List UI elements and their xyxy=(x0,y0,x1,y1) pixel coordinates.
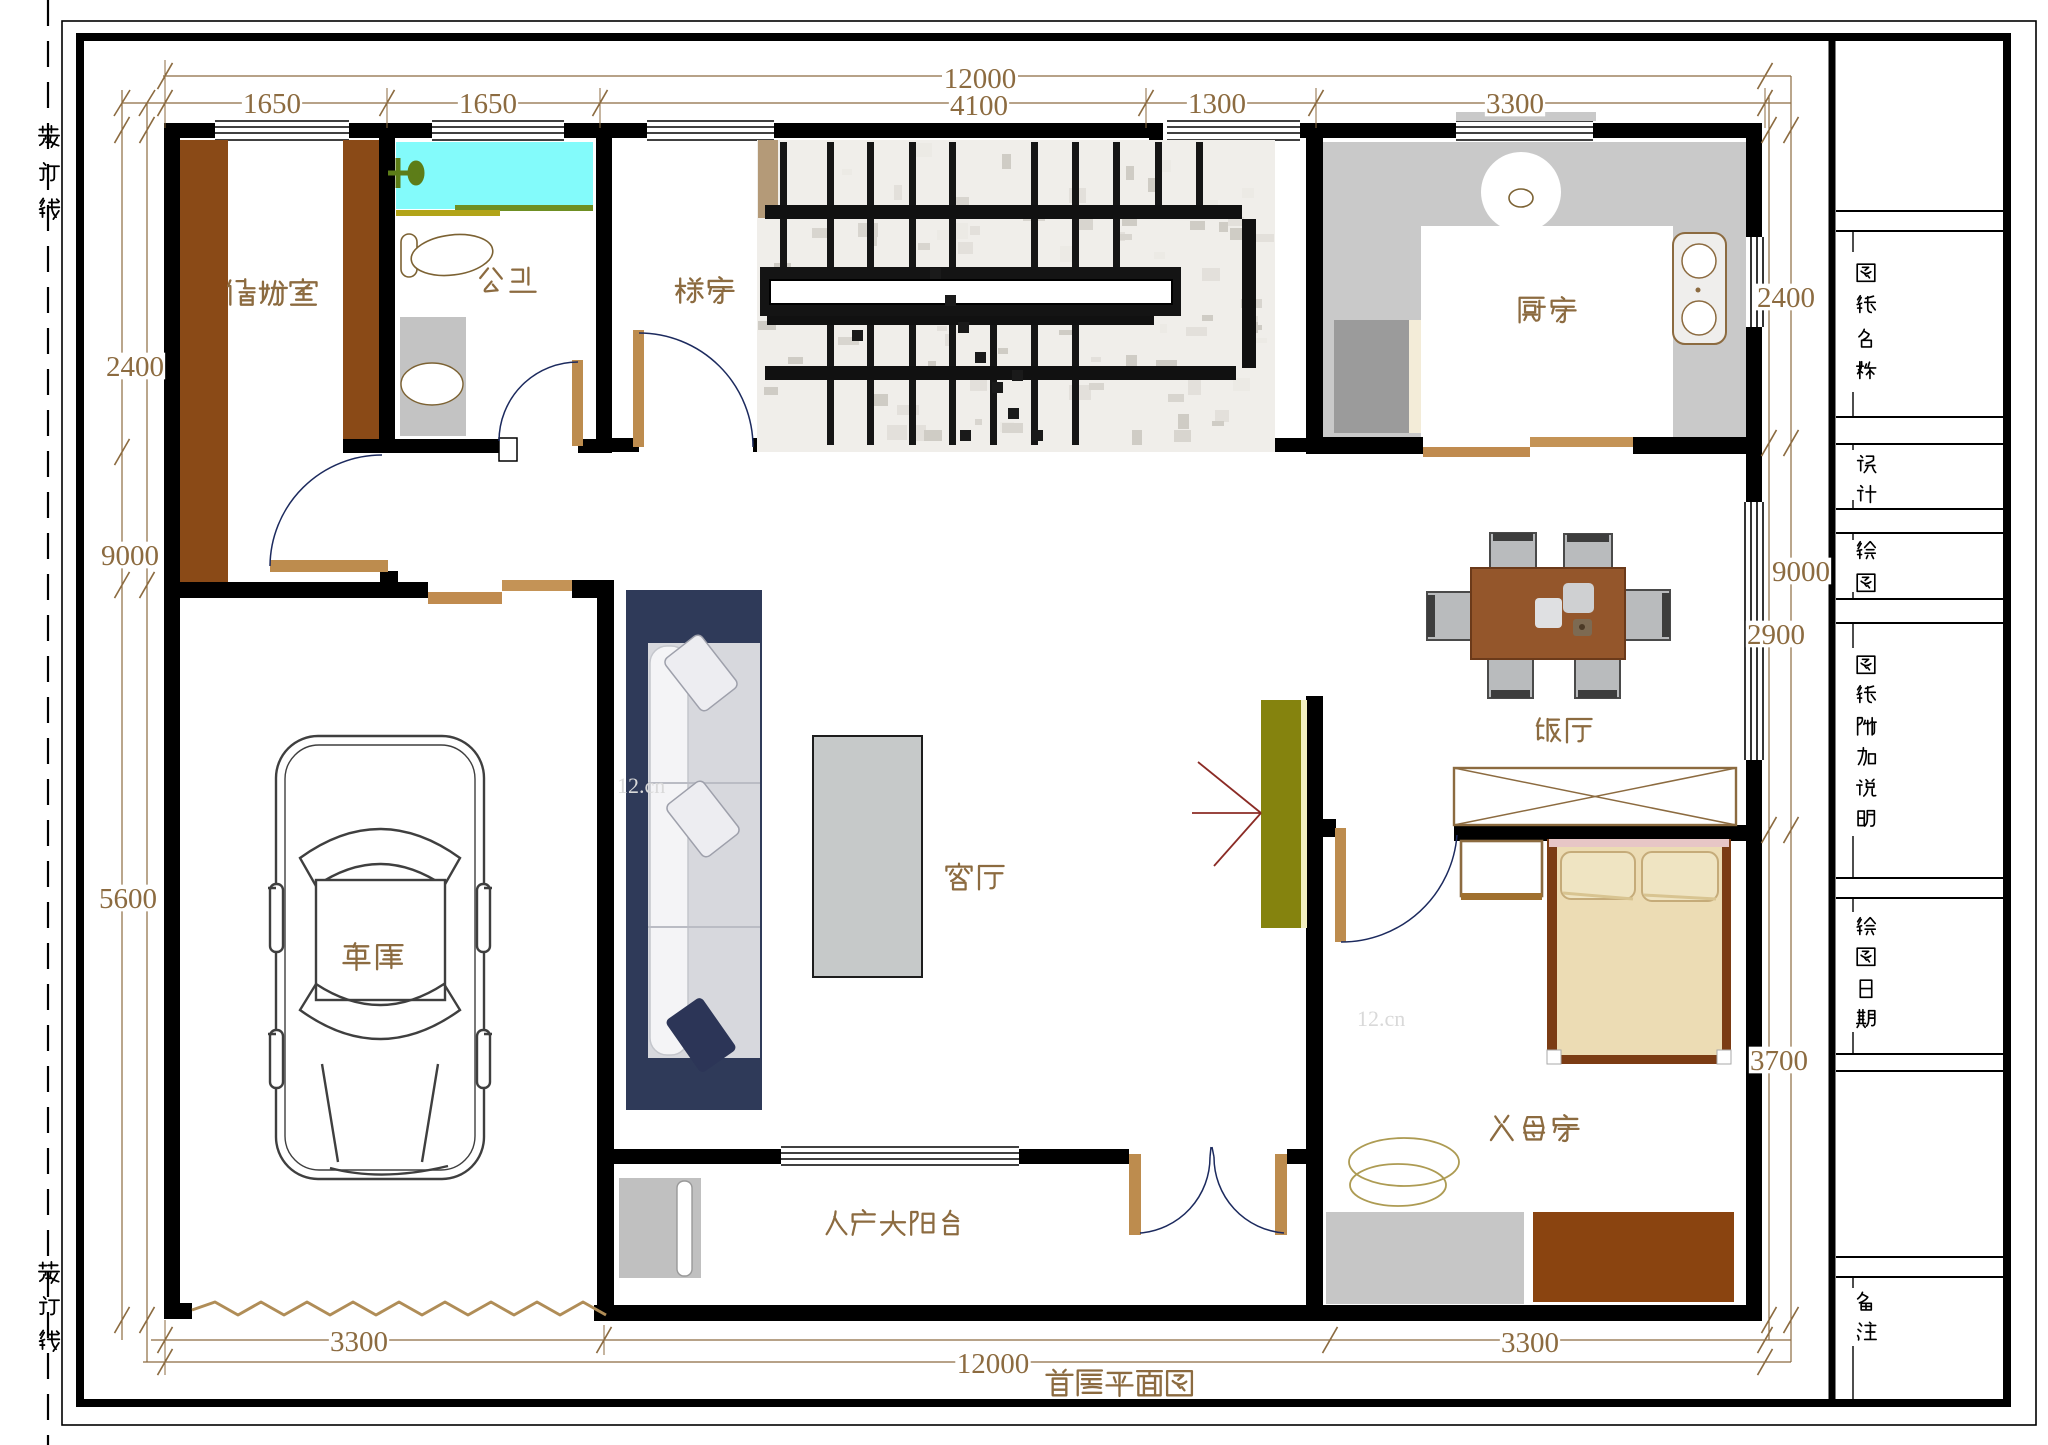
svg-text:3300: 3300 xyxy=(1501,1327,1559,1359)
svg-text:3700: 3700 xyxy=(1750,1045,1808,1077)
svg-text:9000: 9000 xyxy=(101,540,159,572)
svg-text:3300: 3300 xyxy=(1486,88,1544,120)
svg-text:12.cn: 12.cn xyxy=(617,773,665,798)
svg-text:1300: 1300 xyxy=(1188,88,1246,120)
svg-text:12.cn: 12.cn xyxy=(1357,1006,1405,1031)
svg-text:2400: 2400 xyxy=(1757,282,1815,314)
svg-text:9000: 9000 xyxy=(1772,556,1830,588)
svg-text:1650: 1650 xyxy=(459,88,517,120)
svg-text:12000: 12000 xyxy=(957,1348,1030,1380)
svg-text:1650: 1650 xyxy=(243,88,301,120)
svg-text:3300: 3300 xyxy=(330,1326,388,1358)
svg-text:2900: 2900 xyxy=(1747,619,1805,651)
svg-text:2400: 2400 xyxy=(106,351,164,383)
svg-text:5600: 5600 xyxy=(99,883,157,915)
svg-text:4100: 4100 xyxy=(950,90,1008,122)
